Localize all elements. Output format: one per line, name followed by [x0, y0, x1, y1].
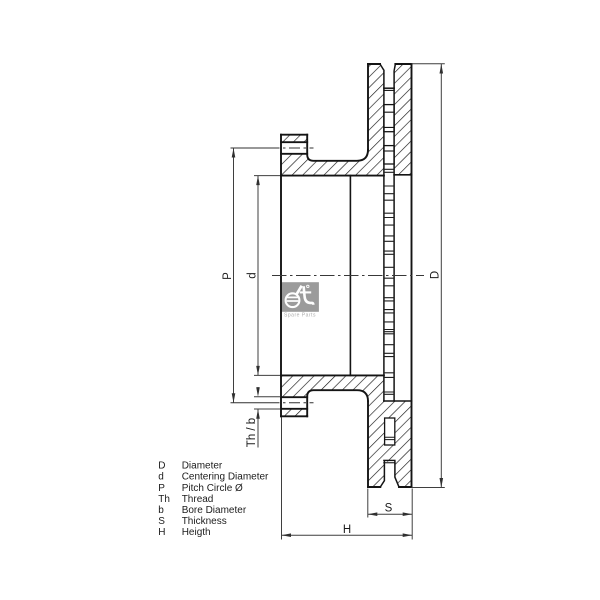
svg-text:Th / b: Th / b: [246, 418, 258, 447]
svg-text:Th: Th: [158, 494, 170, 505]
svg-text:S: S: [158, 516, 165, 527]
svg-text:D: D: [430, 271, 442, 279]
svg-text:d: d: [158, 472, 164, 483]
svg-text:Spare Parts: Spare Parts: [284, 312, 316, 318]
svg-text:Bore Diameter: Bore Diameter: [182, 505, 247, 516]
svg-text:b: b: [158, 505, 164, 516]
svg-text:P: P: [158, 483, 165, 494]
svg-text:Heigth: Heigth: [182, 527, 211, 538]
svg-text:Thread: Thread: [182, 494, 214, 505]
svg-text:Pitch Circle Ø: Pitch Circle Ø: [182, 483, 243, 494]
svg-text:S: S: [385, 503, 393, 515]
svg-text:Diameter: Diameter: [182, 461, 223, 472]
svg-text:Centering Diameter: Centering Diameter: [182, 472, 269, 483]
svg-text:H: H: [158, 527, 165, 538]
svg-text:H: H: [343, 524, 351, 536]
svg-text:P: P: [222, 272, 234, 280]
svg-text:D: D: [158, 461, 165, 472]
svg-text:d: d: [247, 272, 259, 278]
svg-text:Thickness: Thickness: [182, 516, 227, 527]
